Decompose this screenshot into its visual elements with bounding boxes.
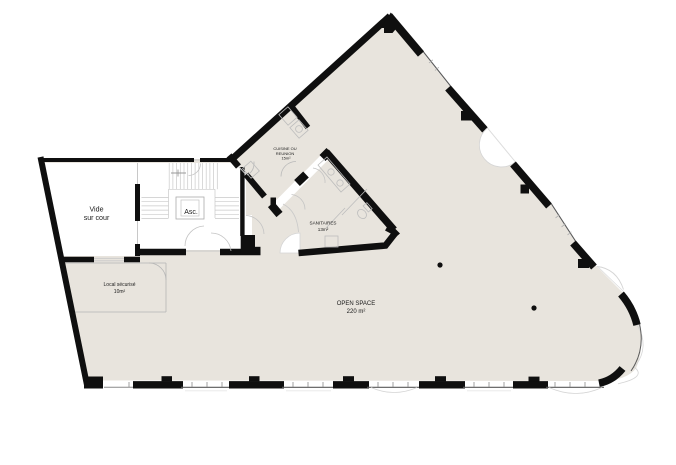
svg-text:Local sécurisé: Local sécurisé (104, 282, 136, 288)
svg-text:15m²: 15m² (281, 155, 291, 160)
svg-text:OPEN SPACE: OPEN SPACE (337, 301, 376, 307)
svg-text:Vide: Vide (89, 206, 103, 214)
svg-text:10m²: 10m² (114, 289, 126, 295)
svg-text:13m²: 13m² (318, 227, 329, 232)
svg-text:sur cour: sur cour (84, 214, 110, 222)
svg-text:SANITAIRES: SANITAIRES (310, 221, 337, 226)
svg-text:Asc.: Asc. (184, 209, 198, 216)
svg-text:220 m²: 220 m² (347, 309, 366, 315)
